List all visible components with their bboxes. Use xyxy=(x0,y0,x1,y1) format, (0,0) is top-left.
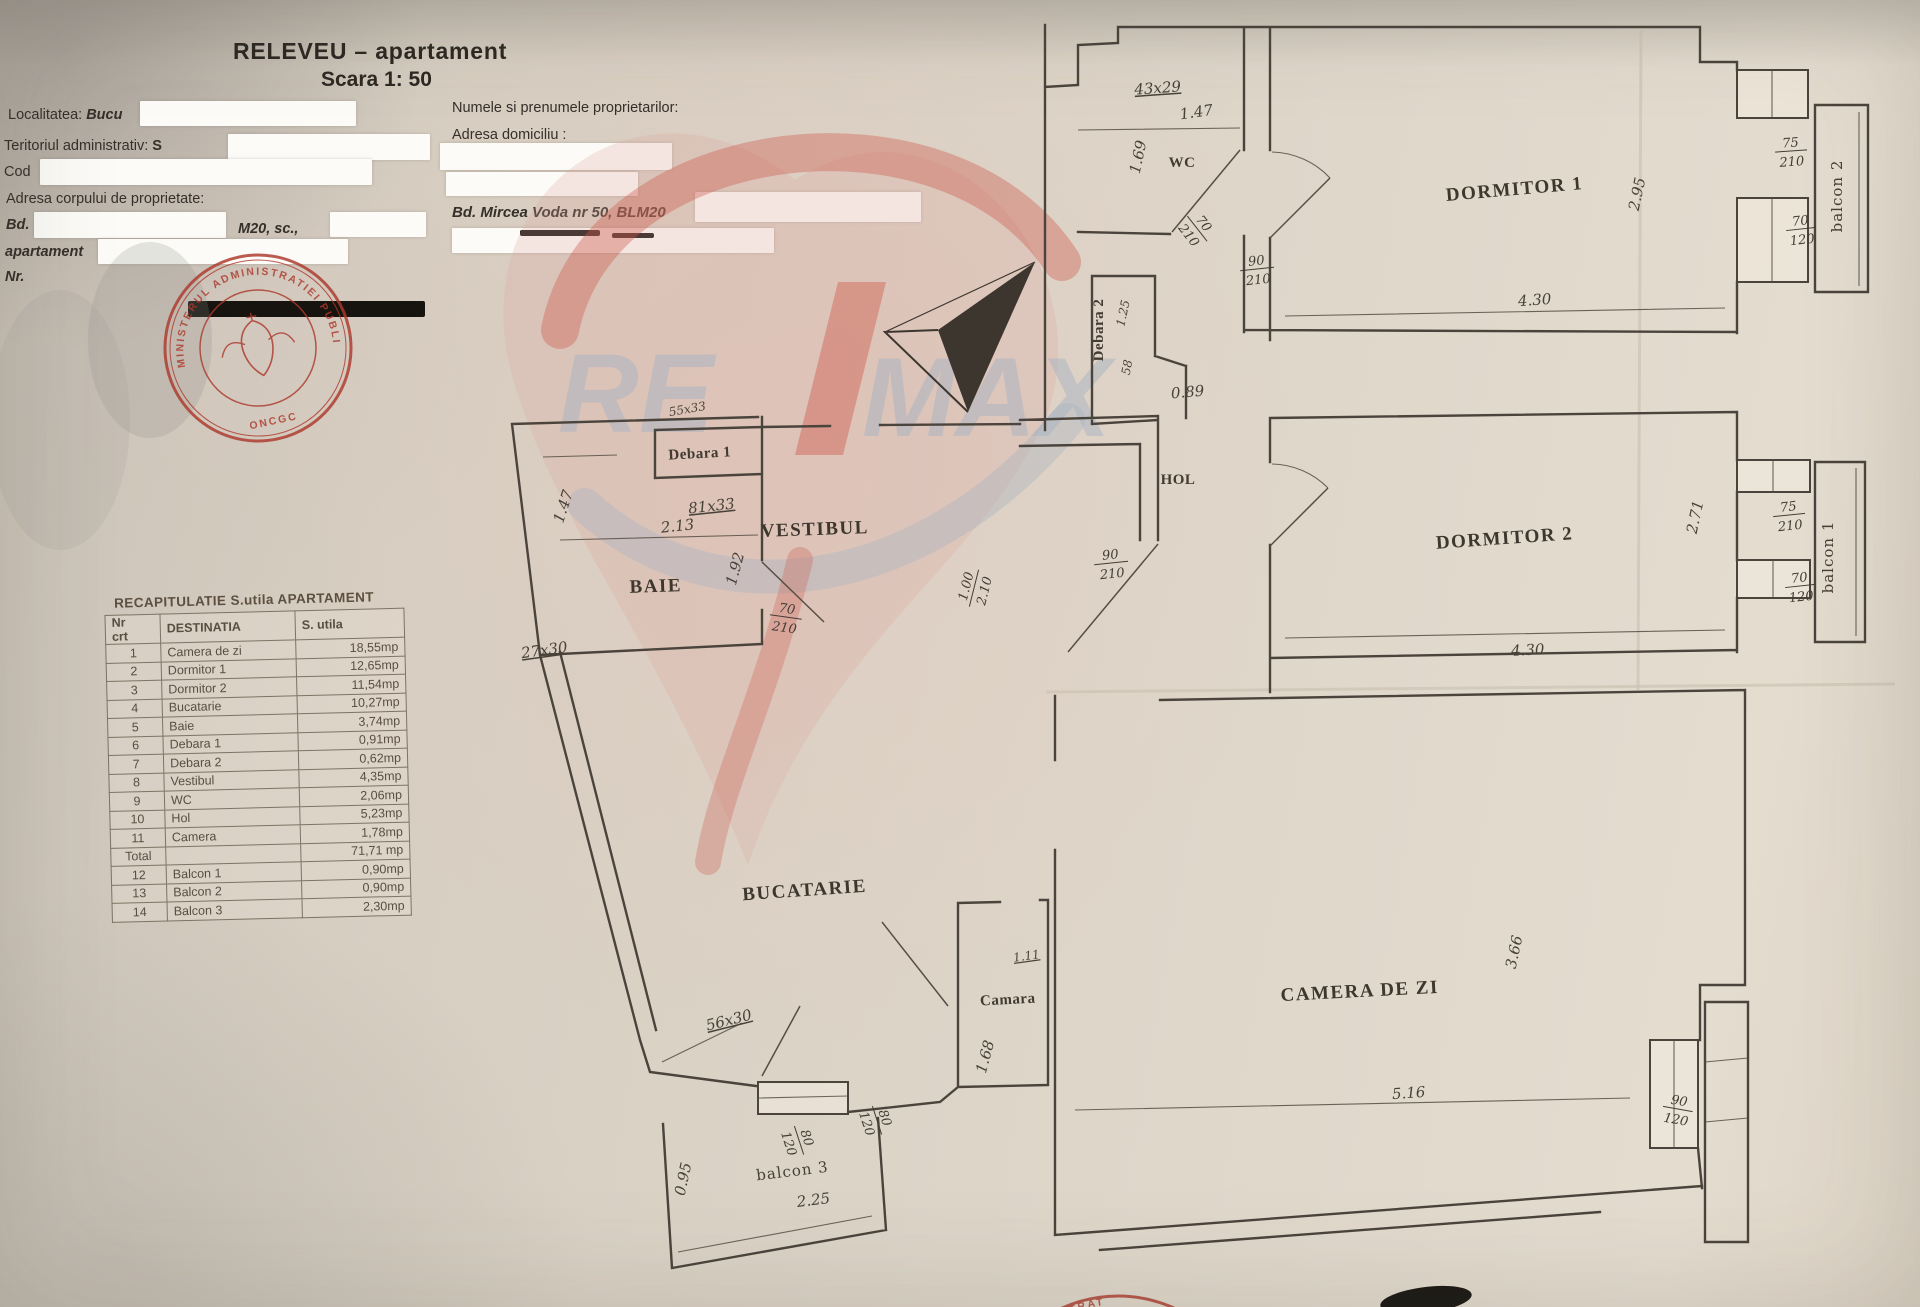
room-label-debara2: Debara 2 xyxy=(1091,299,1107,362)
dim-56x30: 56x30 xyxy=(704,1006,754,1035)
dim-1-69: 1.69 xyxy=(1126,138,1151,175)
dim-2-13: 2.13 xyxy=(659,515,695,536)
dim-4-30-dormitor1: 4.30 xyxy=(1516,290,1552,310)
dim-1-25: 1.25 xyxy=(1113,299,1132,328)
svg-text:75: 75 xyxy=(1779,499,1797,516)
dim-fraction-75-210: 75210 xyxy=(1774,135,1808,171)
scanned-floorplan-document: RELEVEU – apartament Scara 1: 50 Localit… xyxy=(0,0,1920,1307)
watermark-re-text: RE xyxy=(558,331,717,456)
room-label-balcon2: balcon 2 xyxy=(1828,160,1846,233)
dim-0-95: 0.95 xyxy=(671,1161,696,1197)
svg-text:210: 210 xyxy=(1244,272,1271,290)
paper-crease xyxy=(1046,684,1895,692)
room-label-hol: HOL xyxy=(1161,472,1196,488)
dim-1-68: 1.68 xyxy=(972,1038,998,1075)
dim-3-66: 3.66 xyxy=(1502,933,1527,970)
room-label-vestibul: VESTIBUL xyxy=(760,517,869,542)
room-label-dormitor2: DORMITOR 2 xyxy=(1435,523,1574,554)
svg-text:120: 120 xyxy=(1789,232,1815,250)
svg-text:ADMINISTRAT: ADMINISTRAT xyxy=(1012,1296,1109,1307)
dim-1-11: 1.11 xyxy=(1012,947,1040,965)
dim-5-16: 5.16 xyxy=(1391,1083,1426,1103)
stamp-arc-text: ADMINISTRAT xyxy=(1012,1296,1109,1307)
svg-text:210: 210 xyxy=(1778,154,1805,171)
dim-2-25: 2.25 xyxy=(795,1189,831,1211)
room-label-debara1: Debara 1 xyxy=(668,444,732,463)
dim-4-30-dormitor2: 4.30 xyxy=(1510,640,1546,660)
dim-fraction-70-210: 70210 xyxy=(1172,207,1218,253)
partial-round-stamp: ADMINISTRAT xyxy=(964,1278,1271,1307)
svg-text:70: 70 xyxy=(1791,213,1809,230)
dim-fraction-75-210: 75210 xyxy=(1772,498,1807,535)
stamp-crest-icon xyxy=(214,305,300,383)
room-label-camera-de-zi: CAMERA DE ZI xyxy=(1280,977,1439,1006)
room-label-dormitor1: DORMITOR 1 xyxy=(1445,173,1584,206)
ink-smudge xyxy=(1379,1281,1473,1307)
svg-text:2.10: 2.10 xyxy=(974,575,996,608)
room-label-wc: WC xyxy=(1169,155,1196,171)
svg-text:70: 70 xyxy=(1790,570,1808,587)
svg-text:120: 120 xyxy=(1788,589,1814,607)
svg-text:120: 120 xyxy=(855,1110,877,1138)
paper-crease xyxy=(1638,30,1641,690)
svg-text:210: 210 xyxy=(1098,566,1125,584)
remax-watermark: RE MAX xyxy=(503,133,1117,865)
svg-text:210: 210 xyxy=(1776,518,1803,536)
svg-text:75: 75 xyxy=(1782,135,1800,151)
room-label-balcon1: balcon 1 xyxy=(1819,521,1837,594)
svg-text:80: 80 xyxy=(796,1128,815,1148)
dim-fraction-90-210: 90210 xyxy=(1093,546,1130,583)
room-label-baie: BAIE xyxy=(629,575,682,598)
dim-58: 58 xyxy=(1119,358,1136,376)
dim-2-71: 2.71 xyxy=(1683,499,1708,536)
floorplan-drawing: RE MAX MINISTERUL ADMINISTRATIEI PUBLICE… xyxy=(0,0,1920,1307)
svg-text:120: 120 xyxy=(777,1130,799,1158)
dim-fraction-100-210: 1.002.10 xyxy=(955,566,997,611)
svg-text:90: 90 xyxy=(1101,547,1119,564)
room-label-bucatarie: BUCATARIE xyxy=(742,876,868,906)
dim-1-47: 1.47 xyxy=(1179,101,1215,124)
svg-text:70: 70 xyxy=(778,601,796,618)
room-label-balcon3: balcon 3 xyxy=(755,1158,829,1185)
svg-text:90: 90 xyxy=(1247,253,1265,270)
dim-43x29: 43x29 xyxy=(1133,77,1182,98)
dim-fraction-80-120: 80120 xyxy=(776,1121,818,1160)
dim-0-89: 0.89 xyxy=(1170,382,1205,403)
room-label-camara: Camara xyxy=(980,991,1036,1010)
dim-2-95: 2.95 xyxy=(1625,176,1650,213)
